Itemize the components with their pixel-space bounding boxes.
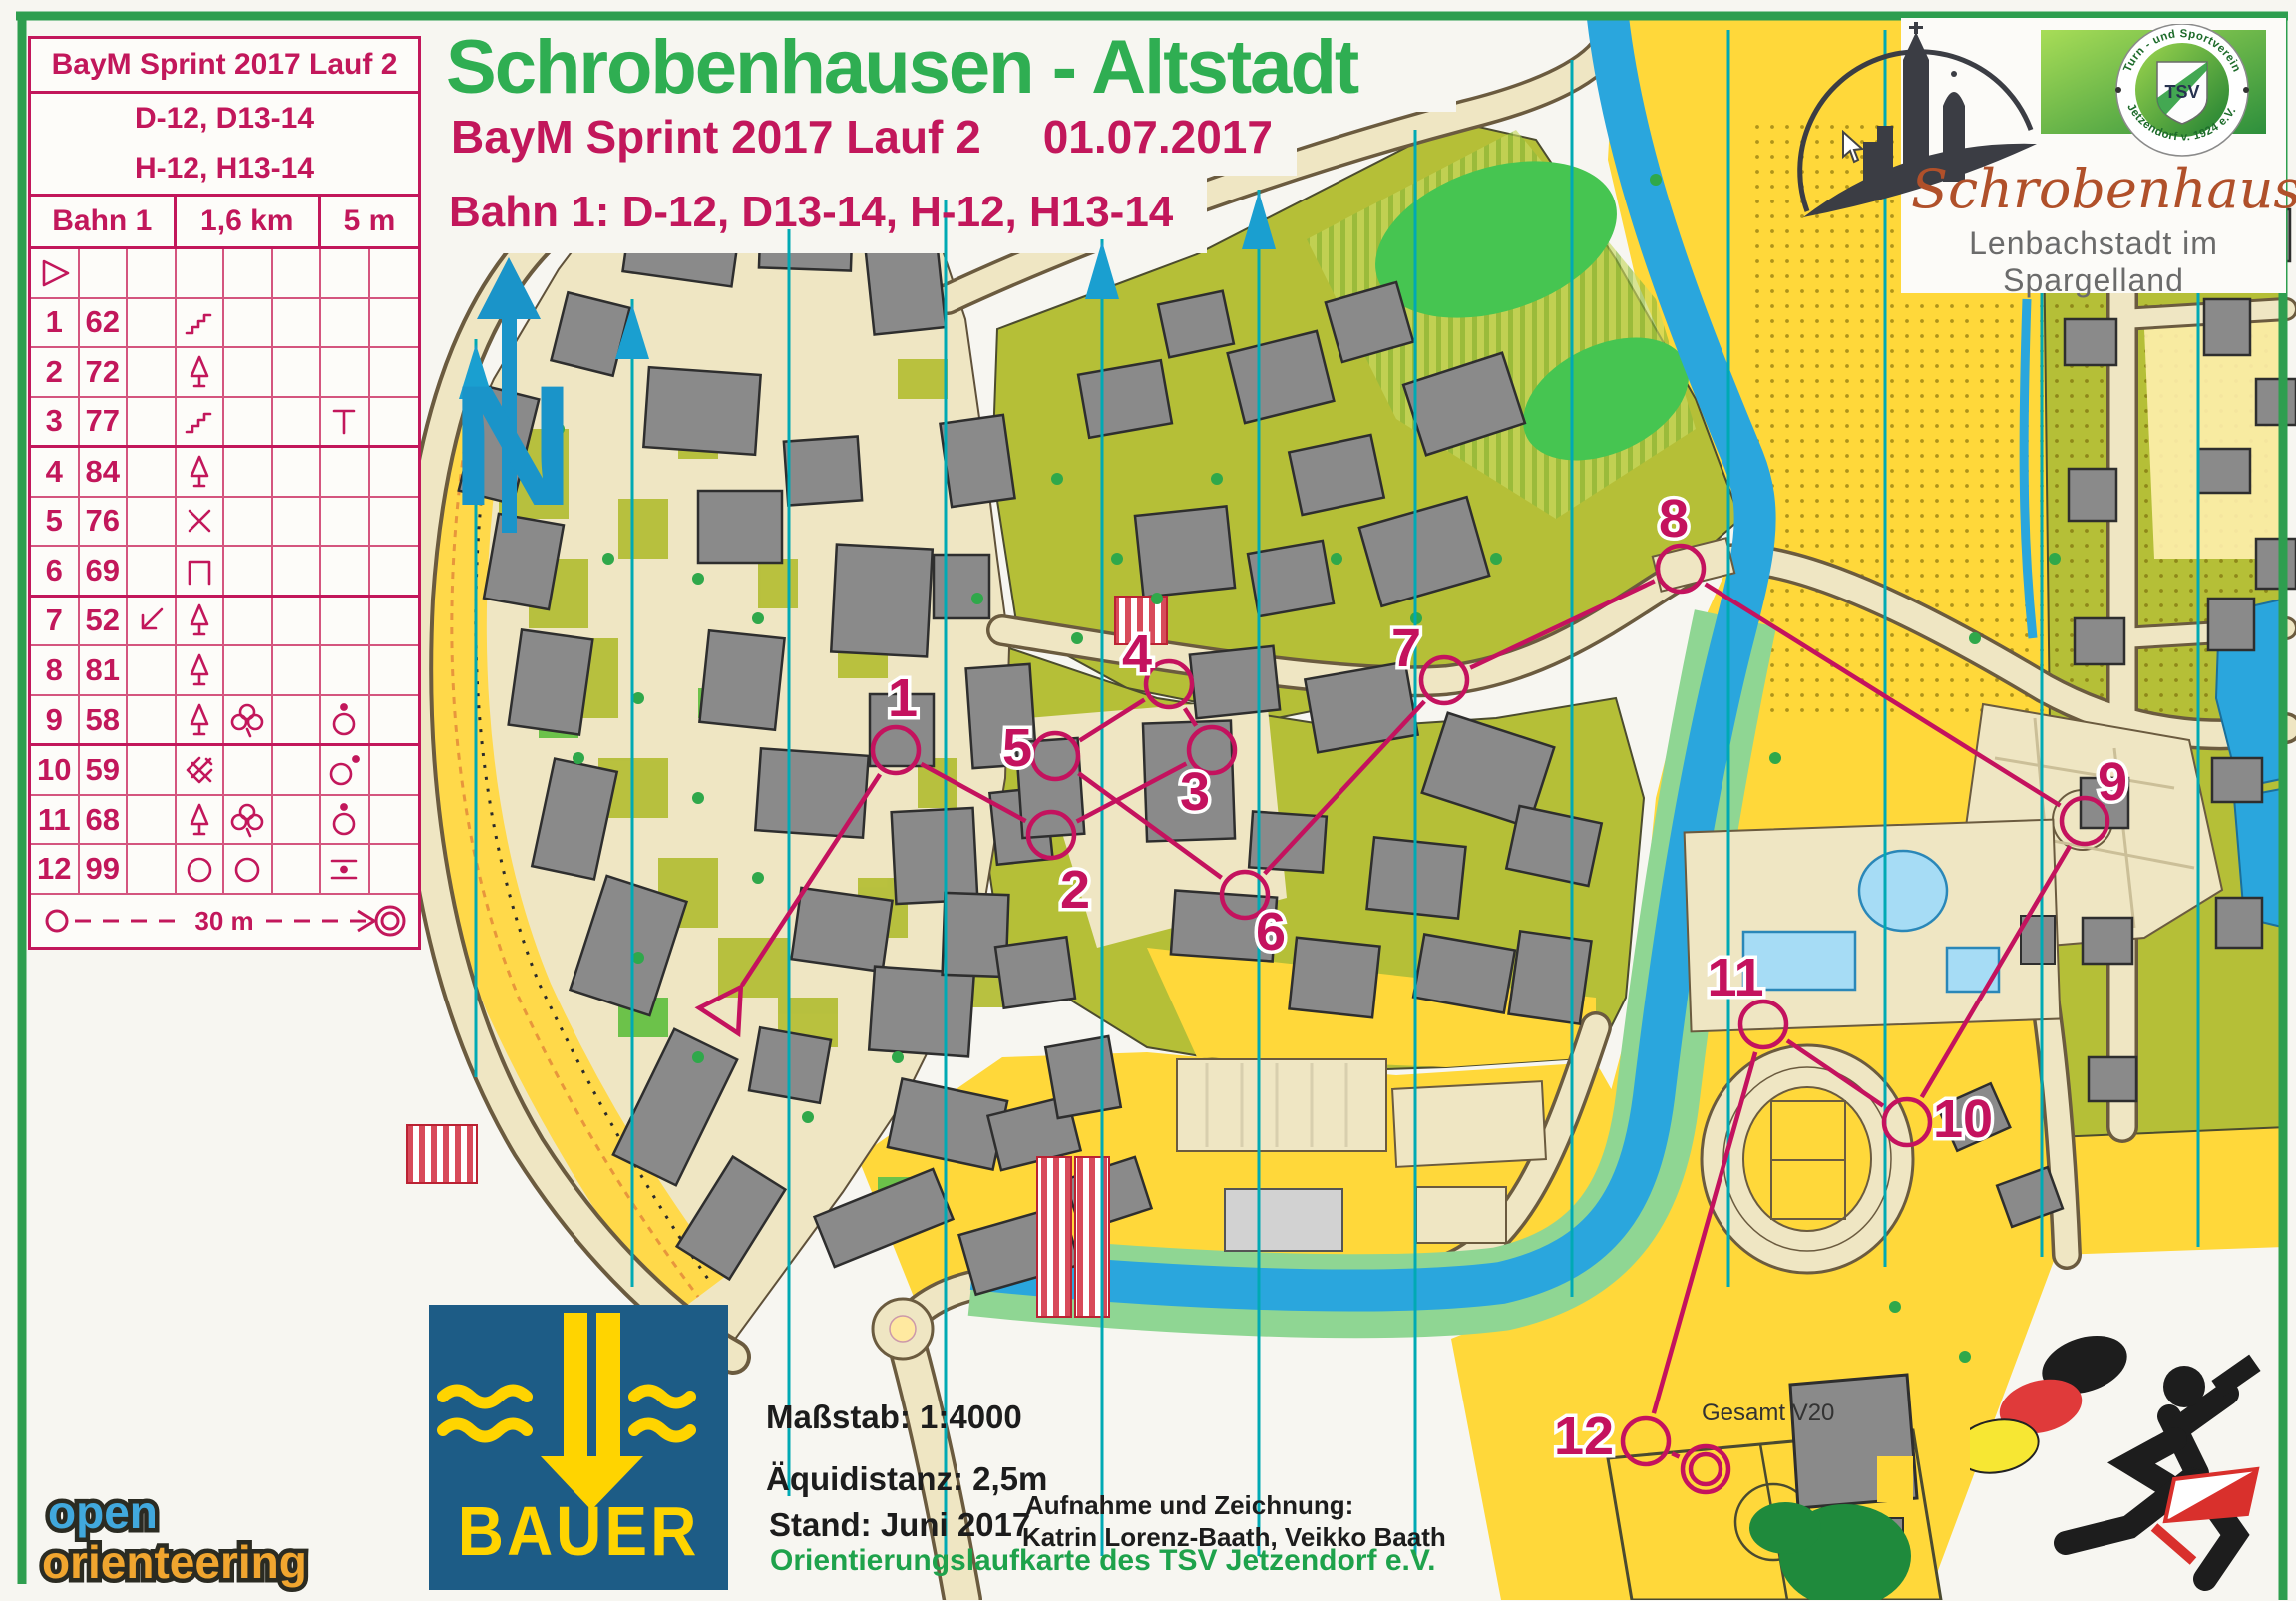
control-label: 12 — [1554, 1406, 1614, 1466]
control-label: 9 — [2098, 752, 2127, 812]
control-label: 2 — [1060, 860, 1090, 920]
map-equidistance: Äquidistanz: 2,5m — [766, 1460, 1047, 1498]
control-description-card: BayM Sprint 2017 Lauf 2 D-12, D13-14 H-1… — [28, 36, 421, 950]
control-code: 84 — [80, 448, 129, 496]
start-circle-icon — [47, 911, 67, 931]
control-rows: 162272377484576669752881958105911681299 — [31, 249, 418, 895]
control-row — [31, 249, 418, 299]
city-logo-name: Schrobenhausen — [1911, 158, 2276, 220]
course-name: Bahn 1 — [31, 197, 177, 246]
control-number: 6 — [31, 547, 80, 595]
control-row: 162 — [31, 299, 418, 349]
tree-icon — [177, 448, 225, 496]
event-date: 01.07.2017 — [1043, 110, 1273, 164]
open-orienteering-logo: open orienteering — [34, 1484, 363, 1596]
control-label: 5 — [1002, 718, 1032, 778]
tsv-badge: Turn - und Sportverein Jetzendorf v. 192… — [2035, 24, 2294, 164]
card-course-header: Bahn 1 1,6 km 5 m — [31, 197, 418, 249]
stairs-icon — [177, 299, 225, 347]
control-number: 5 — [31, 498, 80, 546]
control-number: 4 — [31, 448, 80, 496]
course-length: 1,6 km — [177, 197, 322, 246]
control-label: 6 — [1256, 902, 1286, 962]
tree-icon — [177, 598, 225, 645]
dot-above-circle-icon — [321, 696, 370, 744]
tree-icon — [177, 696, 225, 744]
control-code: 62 — [80, 299, 129, 347]
course-classes-line: Bahn 1: D-12, D13-14, H-12, H13-14 — [449, 188, 1173, 237]
control-label: 11 — [1707, 948, 1763, 1007]
map-edition: Stand: Juni 2017 — [769, 1506, 1030, 1544]
between-lines-icon — [321, 845, 370, 893]
control-code: 99 — [80, 845, 129, 893]
orienteering-word: orienteering — [42, 1536, 307, 1588]
control-row: 576 — [31, 498, 418, 548]
control-label: 4 — [1122, 624, 1152, 684]
control-label: 7 — [1391, 618, 1421, 678]
control-label: 1 — [888, 668, 918, 728]
control-code: 68 — [80, 796, 129, 844]
finish-funnel-row: 30 m — [31, 895, 418, 947]
control-code: 58 — [80, 696, 129, 744]
map-title: Schrobenhausen - Altstadt — [446, 24, 1357, 111]
start-triangle-icon — [31, 249, 80, 297]
open-word: open — [48, 1486, 158, 1538]
control-number: 9 — [31, 696, 80, 744]
north-label: N — [451, 350, 574, 542]
control-number: 11 — [31, 796, 80, 844]
thicket-icon — [177, 746, 225, 794]
circle-icon — [224, 845, 273, 893]
crossing-icon — [177, 498, 225, 546]
control-row: 484 — [31, 448, 418, 498]
map-annotation: Gesamt V20 — [1702, 1400, 1834, 1426]
control-row: 272 — [31, 348, 418, 398]
arrow-sw-icon — [128, 598, 177, 645]
control-code: 59 — [80, 746, 129, 794]
tree-icon — [177, 646, 225, 694]
control-row: 1168 — [31, 796, 418, 846]
course-climb: 5 m — [321, 197, 418, 246]
dot-ne-circle-icon — [321, 746, 370, 794]
stairs-icon — [177, 398, 225, 446]
control-label: 3 — [1180, 762, 1210, 822]
t-post-icon — [321, 398, 370, 446]
bauer-wordmark: BAUER — [429, 1491, 728, 1571]
control-label: 10 — [1933, 1089, 1993, 1149]
control-number: 1 — [31, 299, 80, 347]
control-number: 7 — [31, 598, 80, 645]
control-number: 3 — [31, 398, 80, 446]
event-name: BayM Sprint 2017 Lauf 2 — [451, 110, 981, 164]
tsv-shield-text: TSV — [2164, 82, 2199, 102]
control-row: 377 — [31, 398, 418, 449]
scanned-orienteering-map-page: { "header": { "title": "Schrobenhausen -… — [0, 0, 2296, 1600]
baton — [2154, 1527, 2193, 1561]
control-code: 69 — [80, 547, 129, 595]
tree-icon — [177, 796, 225, 844]
control-row: 1059 — [31, 746, 418, 796]
control-code: 81 — [80, 646, 129, 694]
clover-icon — [224, 796, 273, 844]
course-leg — [1672, 1453, 1679, 1456]
control-label: 8 — [1659, 489, 1689, 549]
credit-label: Aufnahme und Zeichnung: — [1025, 1490, 1353, 1521]
control-number: 10 — [31, 746, 80, 794]
control-row: 669 — [31, 547, 418, 598]
map-scale: Maßstab: 1:4000 — [766, 1399, 1022, 1436]
funnel-distance: 30 m — [194, 906, 253, 936]
control-number: 2 — [31, 348, 80, 396]
control-code: 72 — [80, 348, 129, 396]
event-line: BayM Sprint 2017 Lauf 2 01.07.2017 — [451, 110, 1273, 164]
mouse-cursor-icon — [1840, 130, 1868, 166]
card-title: BayM Sprint 2017 Lauf 2 — [31, 39, 418, 94]
control-row: 881 — [31, 646, 418, 696]
control-code: 76 — [80, 498, 129, 546]
club-line: Orientierungslaufkarte des TSV Jetzendor… — [770, 1544, 1435, 1578]
finish-circle-icon — [376, 907, 404, 935]
card-classes-1: D-12, D13-14 — [31, 94, 418, 144]
card-classes-2: H-12, H13-14 — [31, 144, 418, 197]
circle-icon — [177, 845, 225, 893]
clover-icon — [224, 696, 273, 744]
control-number: 12 — [31, 845, 80, 893]
city-logo-subtitle: Lenbachstadt im Spargelland — [1911, 225, 2276, 299]
control-row: 1299 — [31, 845, 418, 895]
tree-icon — [177, 348, 225, 396]
control-row: 958 — [31, 696, 418, 747]
control-row: 752 — [31, 598, 418, 647]
control-code: 52 — [80, 598, 129, 645]
dot-above-circle-icon — [321, 796, 370, 844]
orienteering-runner-logo — [1970, 1332, 2296, 1601]
control-number: 8 — [31, 646, 80, 694]
control-code: 77 — [80, 398, 129, 446]
canopy-icon — [177, 547, 225, 595]
